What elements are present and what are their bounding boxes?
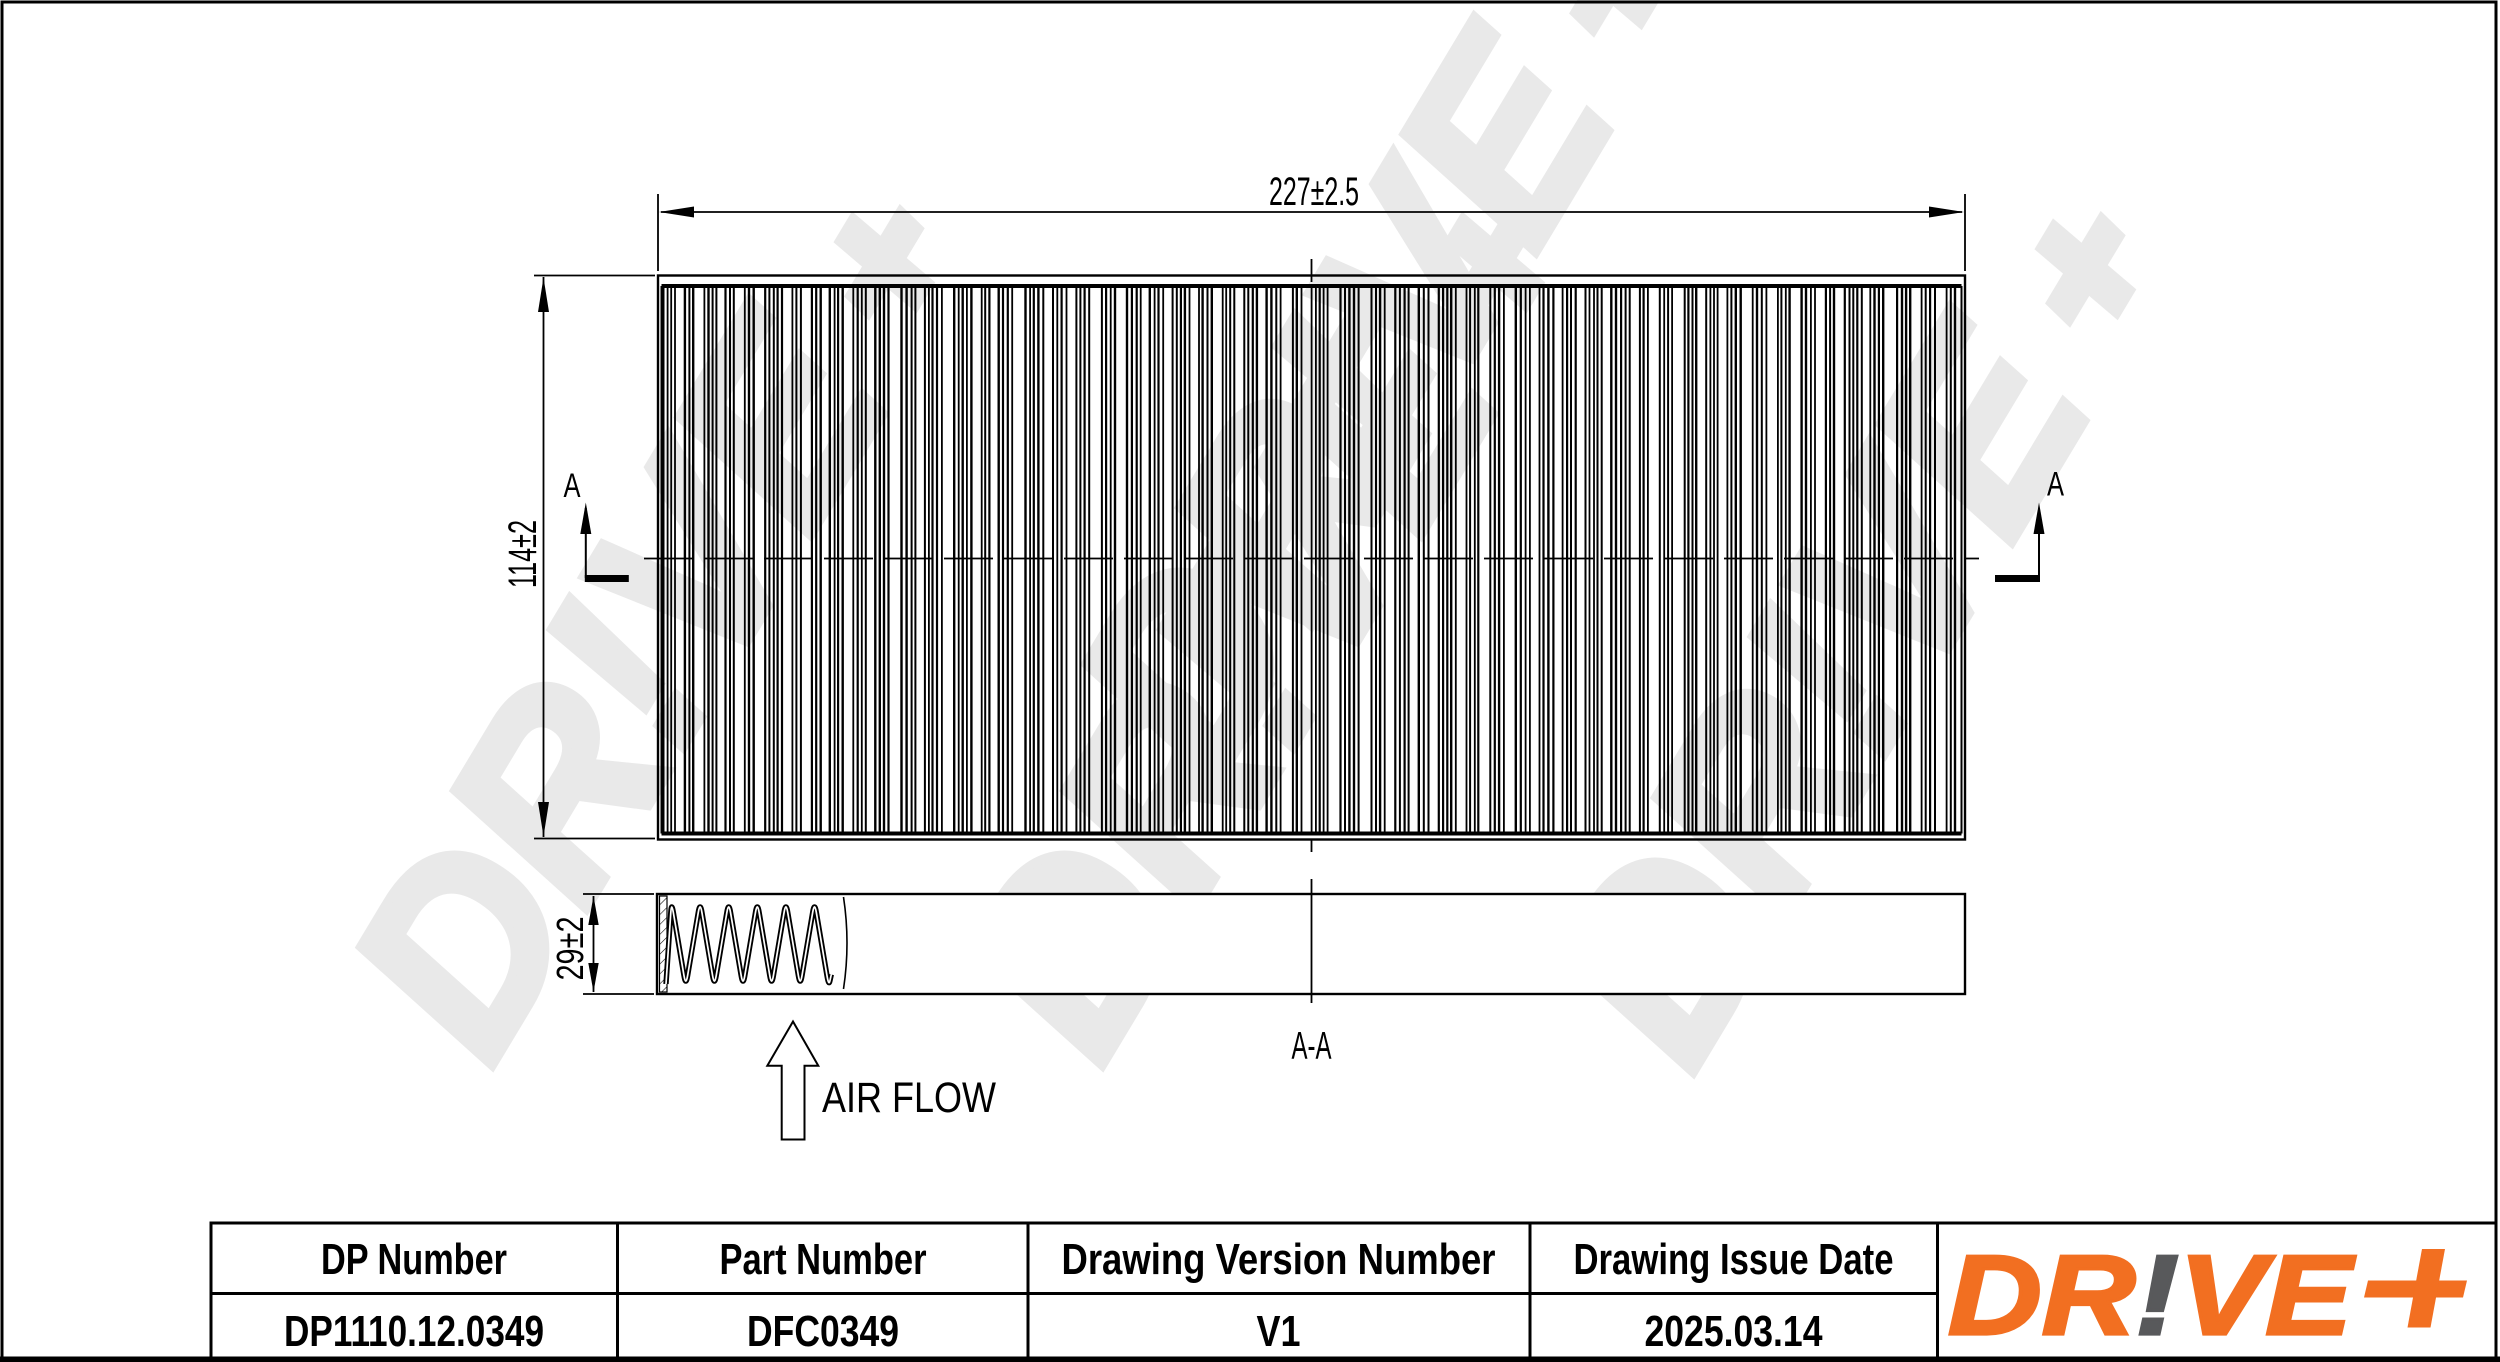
svg-text:AIR FLOW: AIR FLOW <box>822 1075 996 1122</box>
svg-text:A: A <box>564 467 581 505</box>
svg-text:DFC0349: DFC0349 <box>747 1308 899 1356</box>
svg-text:A-A: A-A <box>1292 1025 1332 1068</box>
svg-text:DR!VE: DR!VE <box>1948 1232 2356 1358</box>
svg-text:V1: V1 <box>1257 1308 1301 1356</box>
svg-text:DP Number: DP Number <box>321 1236 507 1284</box>
svg-text:Part Number: Part Number <box>720 1236 927 1284</box>
svg-text:29±2: 29±2 <box>550 917 592 981</box>
svg-text:114±2: 114±2 <box>501 520 545 588</box>
svg-text:DP1110.12.0349: DP1110.12.0349 <box>284 1308 544 1356</box>
svg-text:A: A <box>2047 466 2064 504</box>
svg-text:Drawing Version Number: Drawing Version Number <box>1062 1236 1496 1284</box>
svg-text:2025.03.14: 2025.03.14 <box>1645 1308 1823 1356</box>
svg-text:227±2.5: 227±2.5 <box>1269 170 1359 214</box>
svg-text:Drawing Issue Date: Drawing Issue Date <box>1574 1236 1894 1284</box>
